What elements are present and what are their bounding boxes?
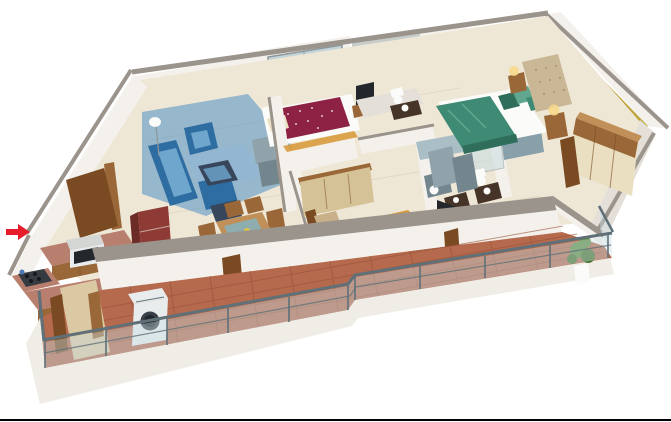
nightstand-right xyxy=(544,112,568,140)
washbasin-2 xyxy=(453,197,459,203)
floor-plan-canvas xyxy=(0,0,671,422)
washbasin-1 xyxy=(402,105,409,112)
nightstand-left xyxy=(508,72,527,94)
planter-pot xyxy=(574,263,590,285)
floor-plan-render xyxy=(0,0,671,422)
kettle xyxy=(20,270,25,275)
floor-lamp-shade xyxy=(149,117,161,127)
washbasin-master xyxy=(484,188,491,195)
bottom-border-line xyxy=(0,419,671,421)
lamp-left xyxy=(509,66,519,76)
lamp-right xyxy=(549,105,560,116)
